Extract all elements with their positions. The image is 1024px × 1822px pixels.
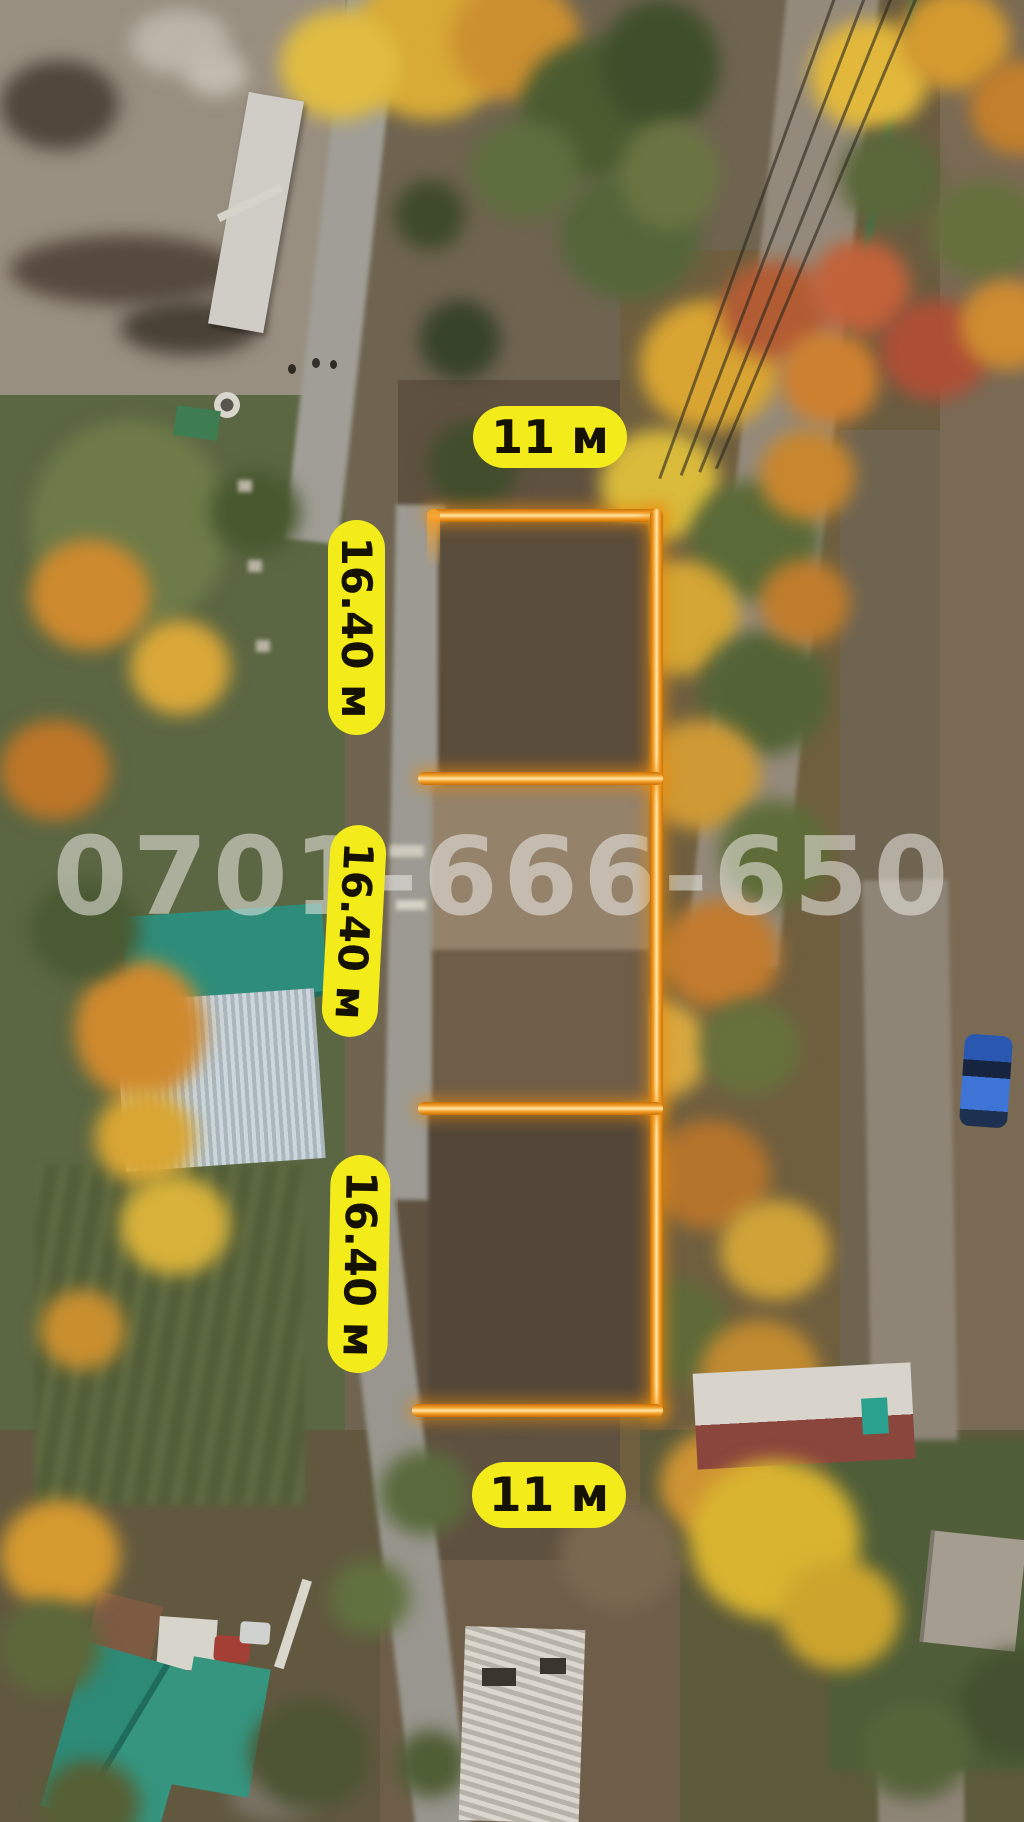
teal-roof-accent: [861, 1397, 889, 1434]
orange-tree: [30, 540, 150, 650]
green-tree: [470, 120, 580, 220]
yellow-tree: [95, 1090, 195, 1185]
orange-tree: [0, 720, 110, 820]
stepping-stone: [256, 640, 270, 652]
yellow-tree: [720, 1200, 830, 1300]
log-stack: [10, 235, 240, 305]
length-label-1: 16.40 м: [328, 520, 385, 735]
length-label-2: 16.40 м: [320, 824, 387, 1039]
orange-tree: [780, 330, 880, 425]
plot-outline-left-stub: [427, 509, 440, 569]
plot-outline-bottom: [412, 1404, 663, 1417]
white-van: [239, 1621, 270, 1645]
plot-divider-2: [418, 1102, 663, 1115]
orange-tree: [0, 1500, 120, 1610]
gray-shed-roof: [919, 1530, 1024, 1651]
green-tree: [0, 1600, 100, 1695]
orange-tree: [40, 1290, 125, 1370]
green-bush: [380, 1450, 470, 1535]
plot-outline-top: [427, 509, 663, 522]
orange-tree-over-house: [75, 960, 205, 1100]
blue-car: [959, 1033, 1013, 1128]
person-dot: [330, 360, 337, 369]
green-tree: [210, 470, 300, 555]
person-dot: [288, 364, 296, 374]
width-label-top: 11 м: [473, 406, 627, 468]
plot-section-3-dirt: [428, 1112, 650, 1404]
green-bush: [396, 1730, 466, 1798]
width-label-bottom: 11 м: [472, 1462, 626, 1528]
yellow-tree: [130, 620, 230, 715]
green-tree: [700, 1000, 800, 1095]
roadside-hedge: [395, 180, 465, 250]
green-shed-roof: [173, 405, 221, 441]
orange-tree: [760, 560, 850, 645]
yellow-tree: [120, 1175, 230, 1275]
orange-tree: [760, 430, 855, 520]
length-label-3: 16.40 м: [327, 1154, 391, 1373]
phone-watermark: 0701-666-650: [52, 824, 953, 932]
person-dot: [312, 358, 320, 368]
house-under-construction: [459, 1626, 586, 1822]
stepping-stone: [238, 480, 252, 492]
dark-green-bush: [250, 1700, 370, 1810]
green-tree: [620, 120, 720, 230]
plot-section-2-dirt-dark: [432, 950, 650, 1102]
roof-opening: [482, 1668, 516, 1686]
green-bush: [330, 1560, 410, 1635]
aerial-photo: 0701-666-650 11 м 16.40 м 16.40 м 16.40 …: [0, 0, 1024, 1822]
plot-divider-1: [418, 772, 663, 785]
yellow-tree: [780, 1560, 900, 1670]
stepping-stone: [248, 560, 262, 572]
green-tree: [860, 1700, 970, 1800]
rock-pile: [185, 50, 247, 96]
plot-section-1-dirt: [438, 522, 650, 774]
roadside-hedge: [420, 300, 500, 380]
plot-outline-right: [650, 509, 663, 1417]
green-tree: [600, 0, 720, 130]
roof-opening: [540, 1658, 566, 1674]
log-stack: [0, 60, 120, 150]
